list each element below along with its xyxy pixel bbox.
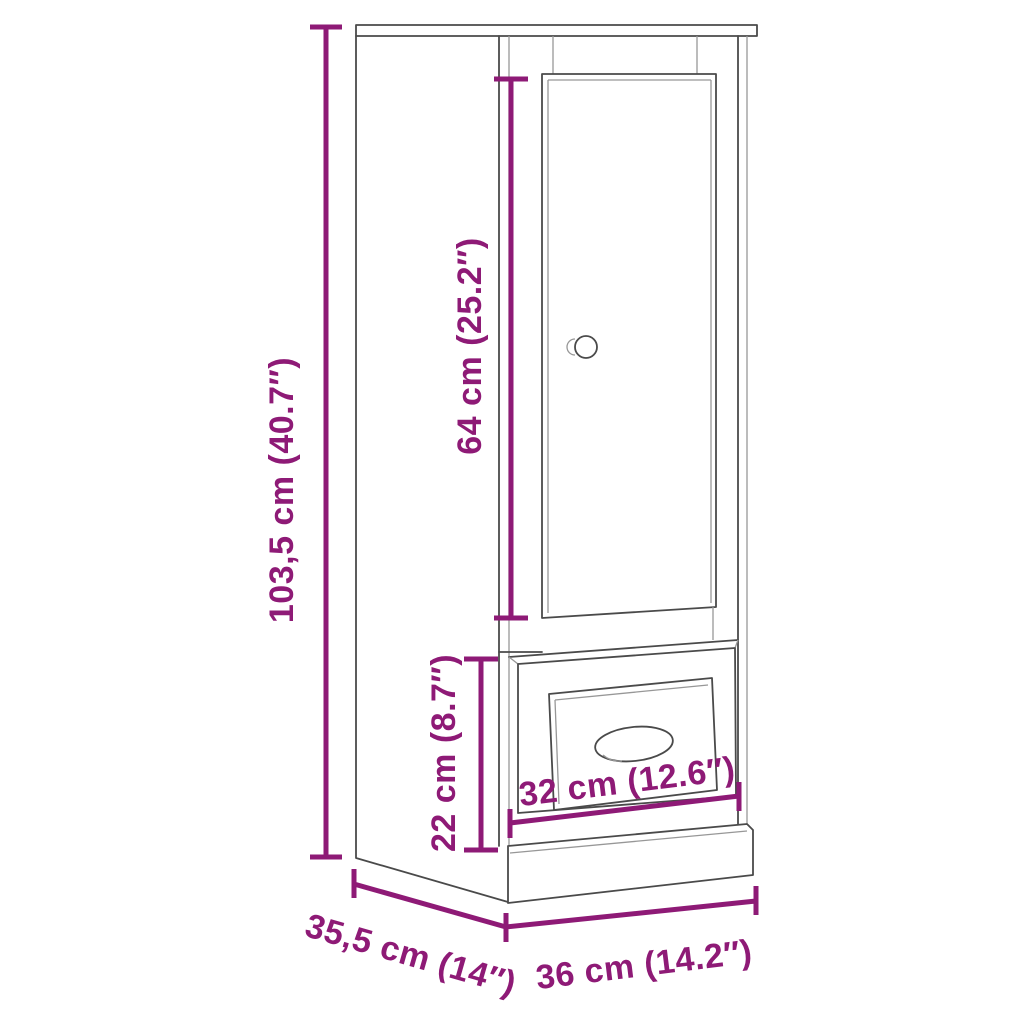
cabinet-base (508, 824, 753, 903)
width-dimension: 36 cm (14.2″) (506, 886, 756, 997)
drawer-section-height-dimension: 22 cm (8.7″) (425, 654, 498, 852)
product-dimension-diagram: 103,5 cm (40.7″) 64 cm (25.2″) 22 cm (8.… (0, 0, 1024, 1024)
drawer-section-height-dimension-label: 22 cm (8.7″) (425, 654, 463, 852)
height-dimension: 103,5 cm (40.7″) (263, 27, 342, 857)
depth-dimension-line (354, 869, 506, 927)
width-dimension-label: 36 cm (14.2″) (534, 933, 754, 997)
cabinet-top-board (356, 25, 757, 36)
height-dimension-label: 103,5 cm (40.7″) (263, 357, 301, 623)
height-dimension-line (310, 27, 342, 857)
drawer-section-height-dimension-line (464, 659, 498, 850)
diagram-canvas: 103,5 cm (40.7″) 64 cm (25.2″) 22 cm (8.… (0, 0, 1024, 1024)
cabinet-door (542, 74, 716, 618)
door-knob (575, 336, 597, 358)
cabinet-top-recess-edges (553, 36, 697, 74)
door-height-dimension: 64 cm (25.2″) (451, 79, 528, 618)
depth-dimension: 35,5 cm (14″) (301, 869, 521, 1003)
door-height-dimension-label: 64 cm (25.2″) (451, 237, 489, 454)
